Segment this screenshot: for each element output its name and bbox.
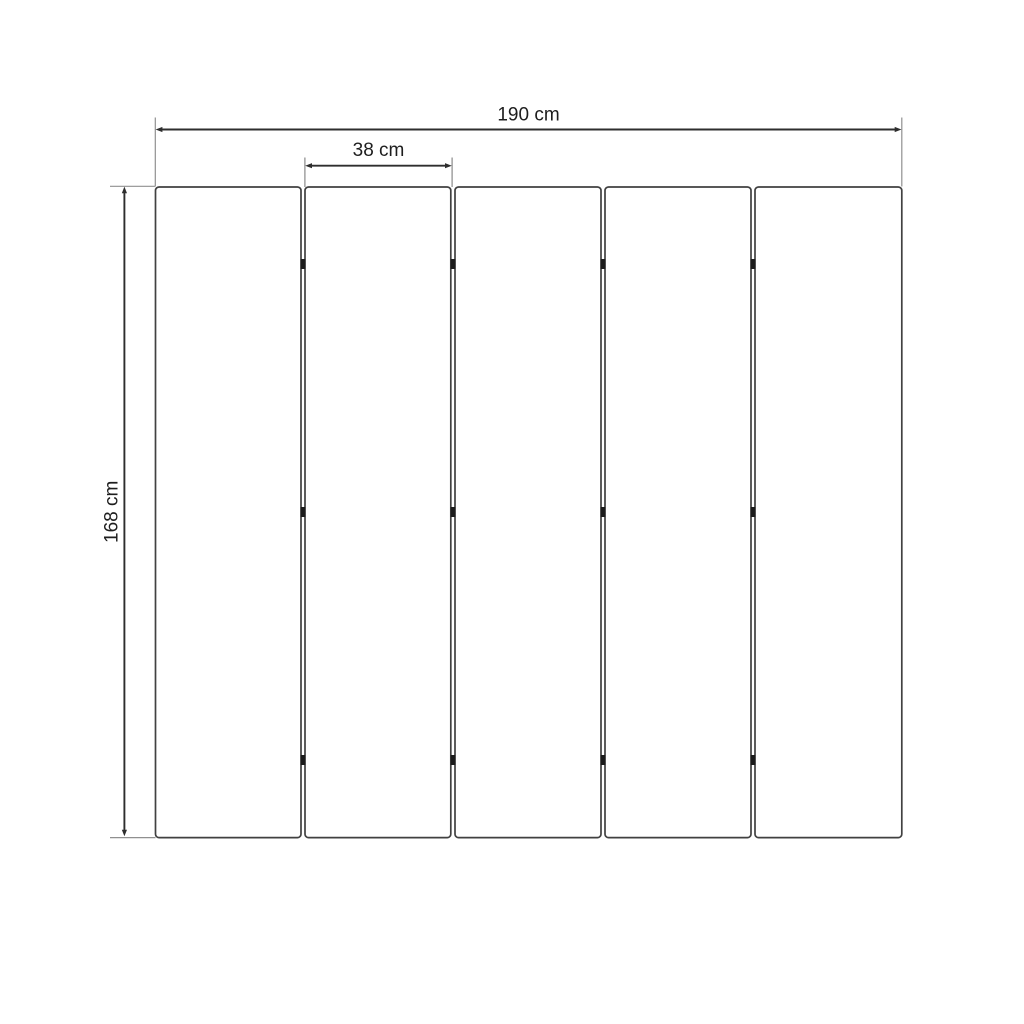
svg-text:190 cm: 190 cm: [497, 105, 559, 126]
svg-text:168 cm: 168 cm: [102, 481, 123, 543]
svg-text:38 cm: 38 cm: [353, 140, 405, 161]
